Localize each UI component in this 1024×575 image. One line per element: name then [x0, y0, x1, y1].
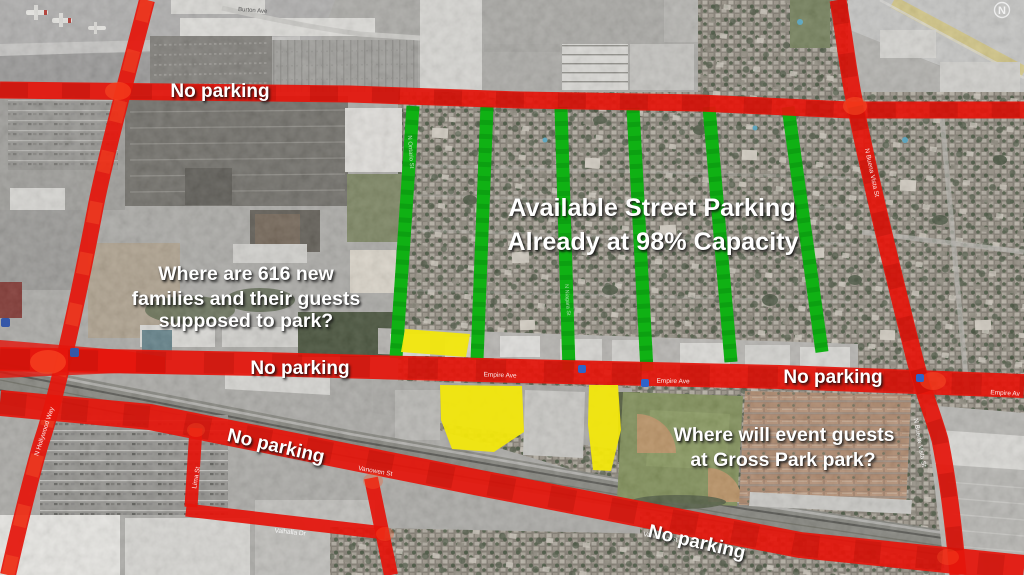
svg-text:Available Street Parking: Available Street Parking	[508, 194, 795, 222]
svg-text:No parking: No parking	[170, 81, 269, 102]
svg-text:Already at 98% Capacity: Already at 98% Capacity	[507, 228, 798, 256]
svg-text:Where will event guests: Where will event guests	[673, 424, 894, 446]
svg-text:No parking: No parking	[250, 358, 349, 379]
svg-text:Empire Ave: Empire Ave	[656, 378, 690, 386]
svg-text:at Gross Park park?: at Gross Park park?	[690, 449, 875, 471]
svg-text:Empire Ave: Empire Ave	[483, 371, 517, 379]
svg-text:families and their guests: families and their guests	[132, 288, 361, 310]
svg-text:supposed to park?: supposed to park?	[159, 310, 333, 332]
svg-text:Where are 616 new: Where are 616 new	[158, 263, 334, 285]
svg-text:No parking: No parking	[783, 367, 882, 388]
